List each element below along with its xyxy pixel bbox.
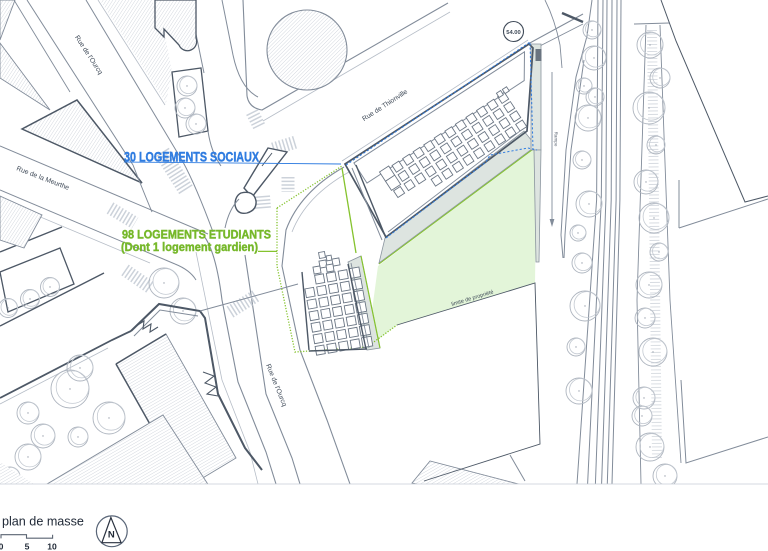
svg-text:plan de masse: plan de masse xyxy=(2,515,84,529)
svg-text:10: 10 xyxy=(47,542,57,551)
svg-text:0: 0 xyxy=(0,542,4,551)
svg-text:(Dont 1 logement gardien): (Dont 1 logement gardien) xyxy=(121,240,258,254)
svg-text:5: 5 xyxy=(25,542,30,551)
svg-text:30 LOGEMENTS SOCIAUX: 30 LOGEMENTS SOCIAUX xyxy=(124,150,259,165)
svg-text:Rampe: Rampe xyxy=(554,132,559,147)
svg-text:N: N xyxy=(108,530,115,541)
svg-text:54.00: 54.00 xyxy=(506,30,521,36)
